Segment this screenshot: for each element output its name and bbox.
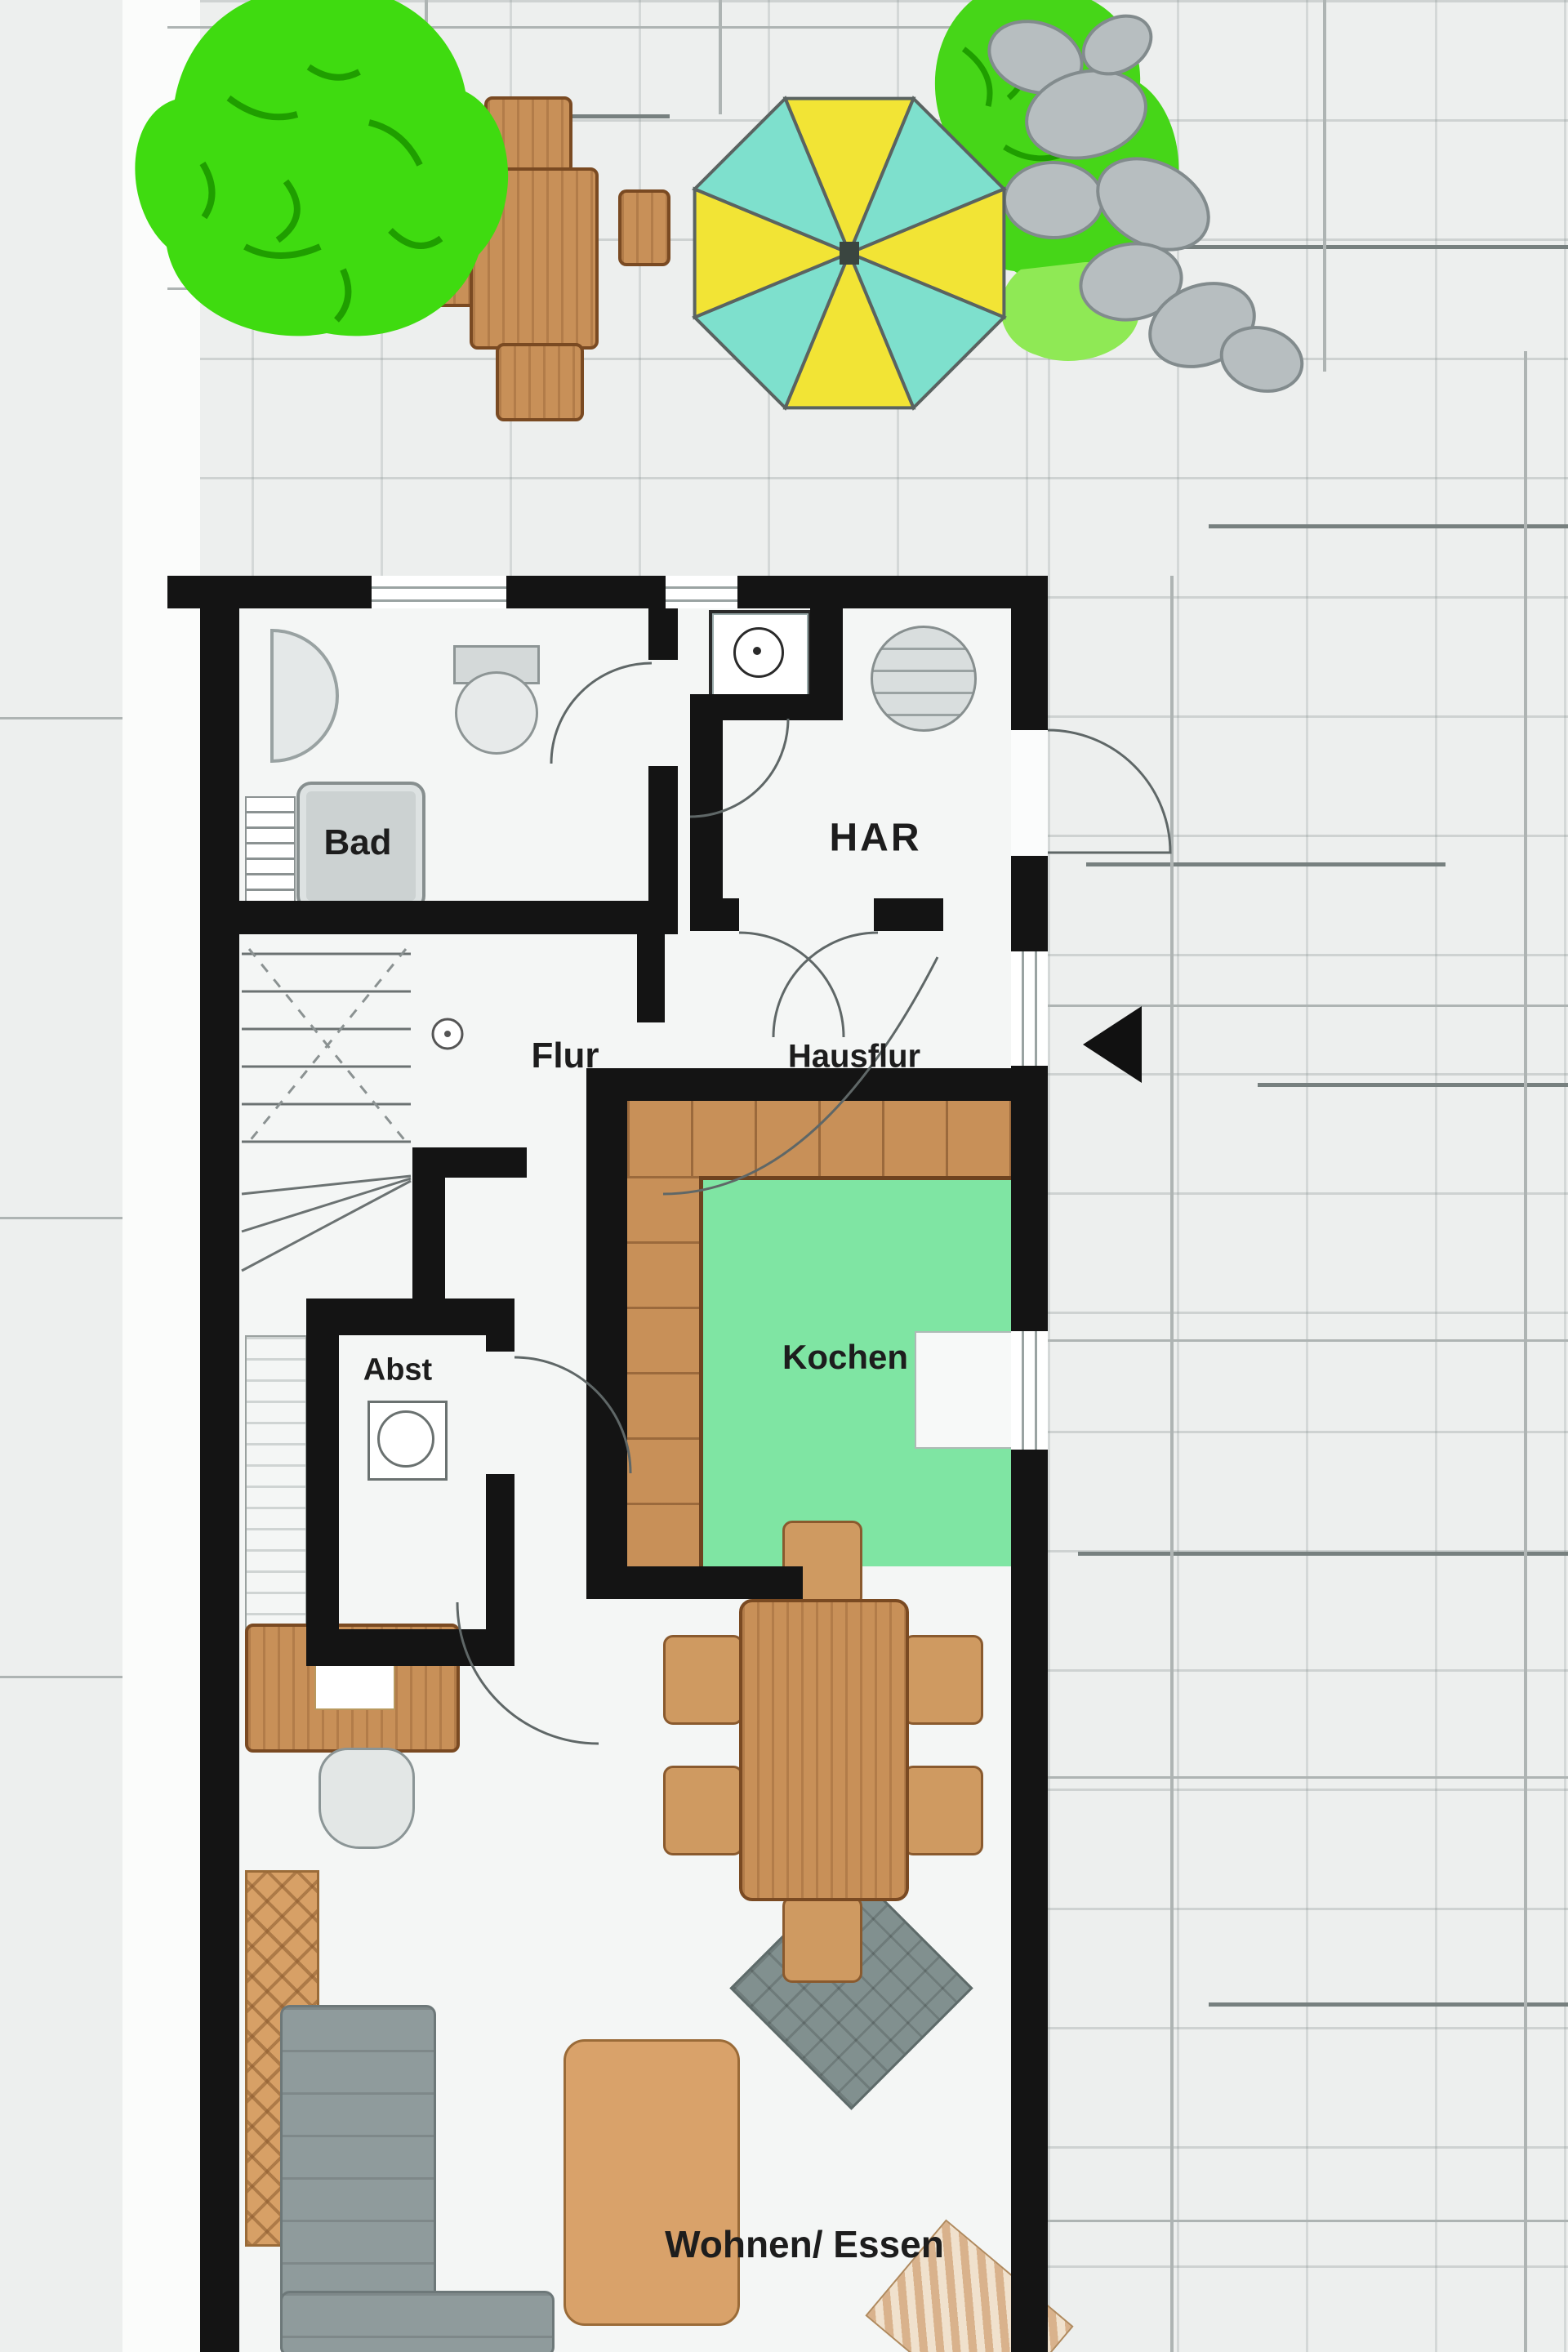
room-label-flur: Flur — [531, 1036, 599, 1076]
room-label-bad: Bad — [323, 822, 391, 863]
door-swing-arc — [739, 933, 844, 1037]
room-label-hausflur: Hausflur — [788, 1039, 920, 1076]
entrance-arrow-icon — [1083, 1006, 1142, 1083]
front-door-swing — [1048, 730, 1170, 853]
room-label-har: HAR — [830, 816, 922, 861]
floorplan-canvas: Bad HAR Flur Hausflur Kochen Abst Wohnen… — [0, 0, 1568, 2352]
door-swing-arc — [690, 719, 788, 817]
door-swing-arc — [514, 1357, 630, 1473]
plan-linework — [0, 0, 1568, 2352]
room-label-kochen: Kochen — [782, 1338, 908, 1377]
room-label-wohnen-essen: Wohnen/ Essen — [665, 2222, 944, 2266]
room-label-abst: Abst — [363, 1353, 432, 1388]
door-swing-arc — [551, 663, 652, 764]
door-swing-arc — [457, 1602, 599, 1744]
door-swing-arc — [773, 933, 878, 1037]
door-swing-arc — [663, 957, 938, 1194]
stairs-icon — [242, 949, 462, 1271]
